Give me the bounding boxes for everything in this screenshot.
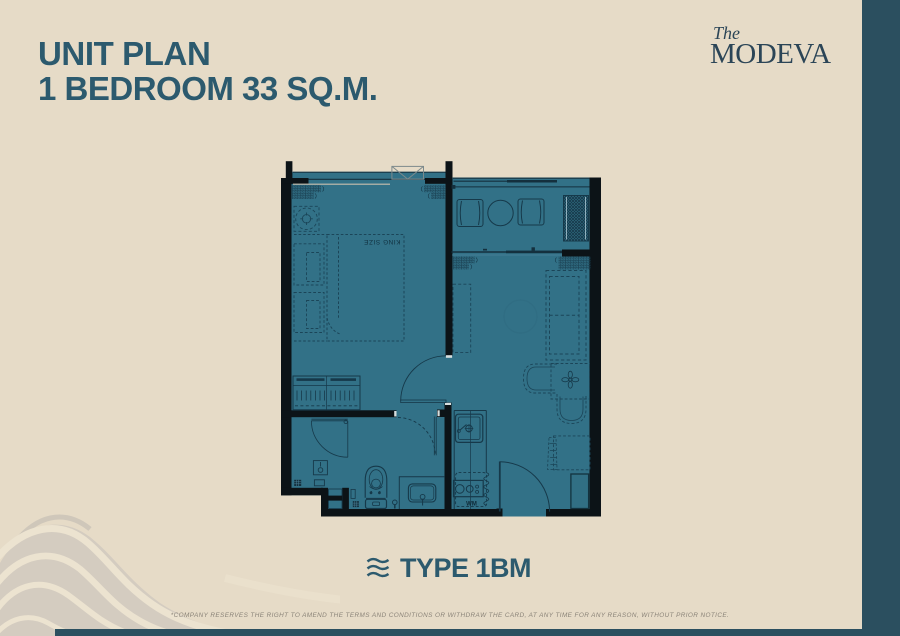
- svg-text:WM: WM: [466, 502, 477, 508]
- svg-text:KING SIZE: KING SIZE: [363, 238, 400, 245]
